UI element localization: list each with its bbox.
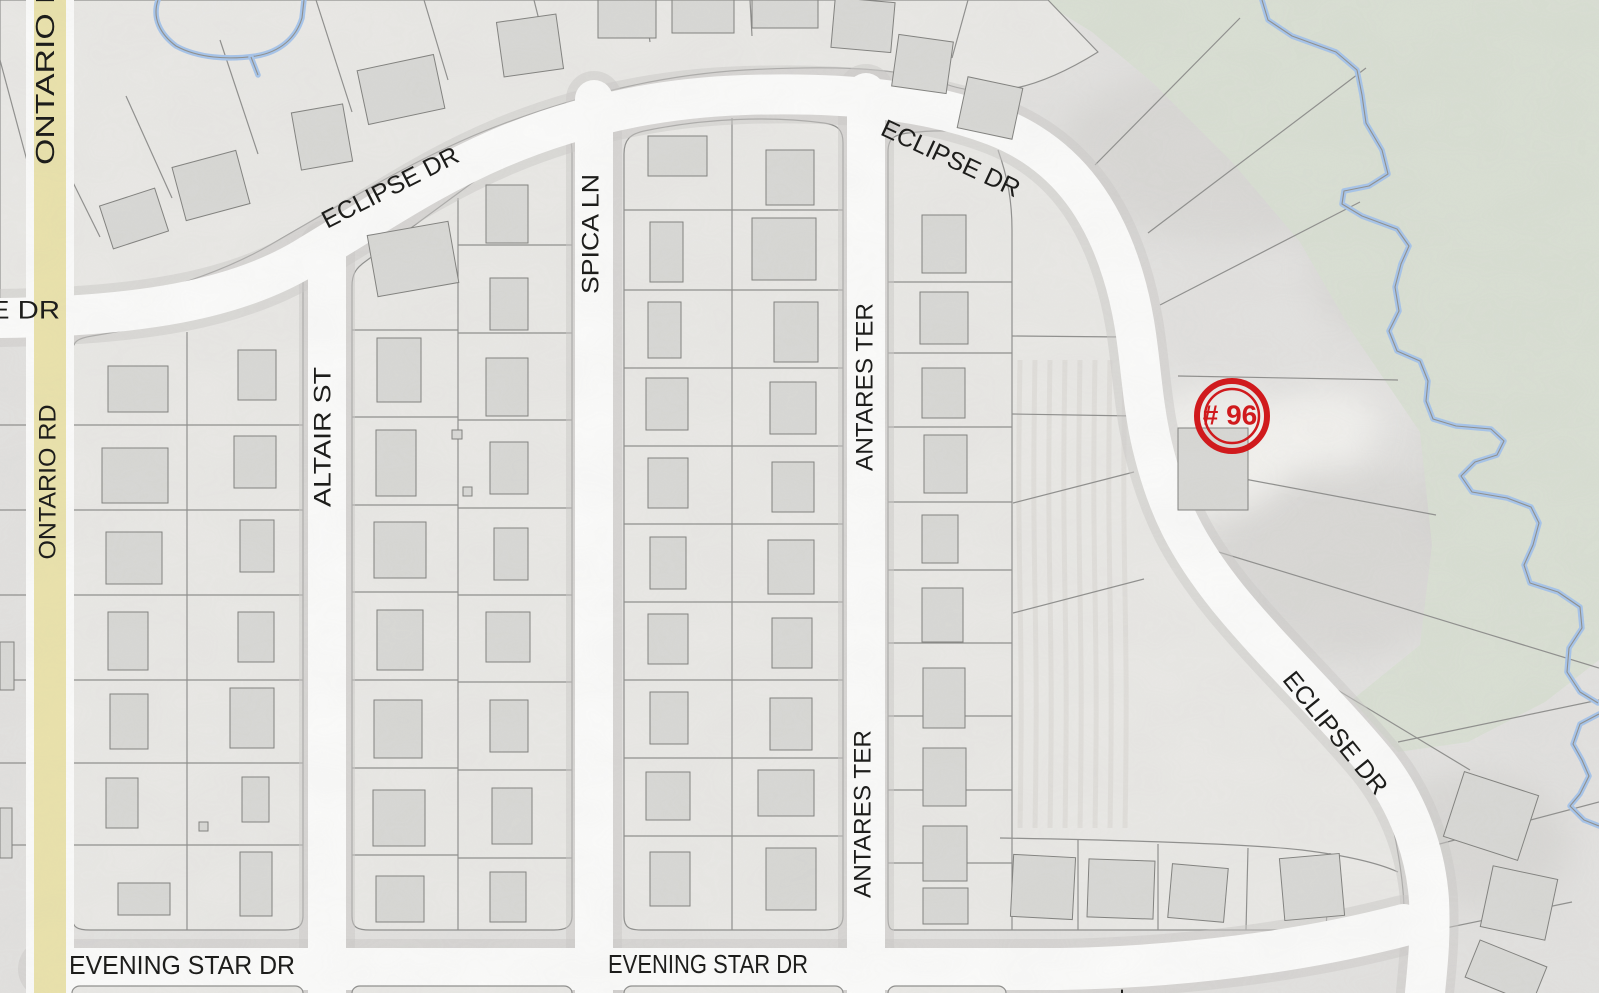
grain-overlay — [0, 0, 1599, 993]
street-label-street-label-fragment: T — [1115, 989, 1145, 993]
texture-overlay — [0, 0, 1599, 993]
map-viewport[interactable]: ONTARIO RDONTARIO RDE DRECLIPSE DRECLIPS… — [0, 0, 1599, 993]
street-label-evening-star-dr-west: EVENING STAR DR — [69, 950, 295, 980]
street-label-antares-ter-north: ANTARES TER — [851, 303, 878, 471]
street-label-spica-ln: SPICA LN — [577, 174, 604, 294]
street-label-ontario-rd: ONTARIO RD — [34, 405, 61, 560]
street-label-ontario-rd-top: ONTARIO RD — [30, 0, 60, 165]
marker-label: # 96 — [1203, 399, 1258, 430]
street-label-evening-star-dr-east: EVENING STAR DR — [608, 949, 808, 979]
street-label-antares-ter-south: ANTARES TER — [849, 730, 876, 898]
street-label-altair-st: ALTAIR ST — [309, 367, 336, 507]
parcel-map-canvas[interactable]: ONTARIO RDONTARIO RDE DRECLIPSE DRECLIPS… — [0, 0, 1599, 993]
street-label-e-dr: E DR — [0, 297, 60, 325]
